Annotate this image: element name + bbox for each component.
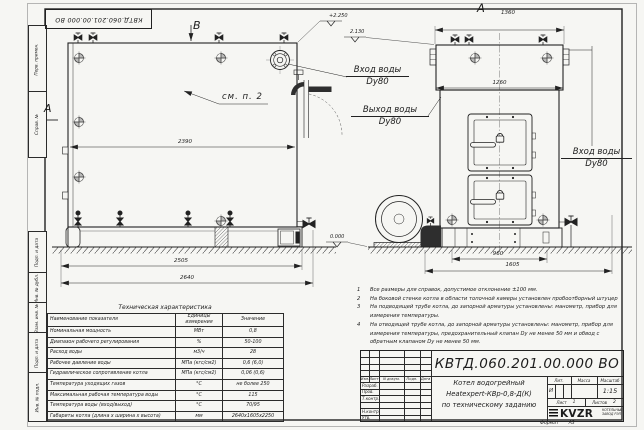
scale-value: 1:15 [597, 384, 623, 398]
sign-row-utv: Утв. [362, 415, 379, 422]
spec-row: Расход водым3/ч28 [48, 348, 284, 359]
water-outlet-dy: Dy80 [351, 117, 429, 128]
spec-name: Максимальная рабочая температура воды [48, 390, 176, 401]
spec-unit: МПа (кгс/см2) [176, 358, 223, 369]
spec-name: Расход воды [48, 348, 176, 359]
kvzr-logo-icon [549, 409, 558, 418]
spec-unit: °С [176, 401, 223, 412]
spec-value: 0,06 (0,6) [223, 369, 284, 380]
margin-label: Инв. № подл. [35, 382, 40, 412]
drawing-notes: 1Все размеры для справок, допустимое отк… [357, 286, 621, 347]
spec-name: Температура воды (вход/выход) [48, 401, 176, 412]
margin-stamp-podp-data-2: Подп. и дата [28, 332, 47, 374]
water-inlet-text: Вход воды [346, 65, 409, 77]
spec-name: Рабочее давление воды [48, 358, 176, 369]
spec-value: 70/95 [223, 401, 284, 412]
spec-row: Номинальная мощностьМВт0,8 [48, 327, 284, 338]
company-name: КОТЕЛЬНЫЙ ЗАВОД РЭП [602, 408, 622, 416]
margin-label: Перв. примен. [35, 43, 40, 75]
water-outlet-text: Выход воды [351, 105, 429, 117]
dim-1605: 1605 [490, 262, 535, 268]
title-block-description: Котел водогрейный Heatexpert-КВр-0,8-Д(К… [433, 378, 545, 420]
margin-stamp-podp-data-1: Подп. и дата [28, 231, 47, 274]
elevation-zero: 0.000 [330, 234, 344, 240]
spec-table-title: Техническая характеристика [47, 304, 283, 311]
spec-value: 28 [223, 348, 284, 359]
kvzr-logo-text: KVZR [560, 408, 593, 420]
spec-unit: м3/ч [176, 348, 223, 359]
spec-header-unit: Единицы измерения [176, 314, 223, 327]
spec-value: 2640х1605х2250 [223, 411, 284, 422]
description-line: Heatexpert-КВр-0,8-Д(К) [433, 389, 545, 400]
sheets-label: Листов [592, 400, 607, 405]
dim-960: 960 [478, 251, 518, 257]
company-name-line: ЗАВОД РЭП [602, 412, 622, 416]
water-inlet-label-front: Вход воды Dy80 [561, 147, 632, 170]
note-number: 4 [357, 321, 370, 347]
lit-label: Лит. [547, 376, 571, 384]
spec-value: 50-100 [223, 337, 284, 348]
note-number: 2 [357, 295, 370, 304]
margin-stamp-vzam-inv: Взам. инв. № [28, 302, 47, 334]
company-logo: KVZR [549, 407, 601, 420]
margin-stamp-perv-primen: Перв. примен. [28, 25, 47, 93]
spec-name: Габариты котла (длина х ширина х высота) [48, 411, 176, 422]
spec-name: Гидравлическое сопротивление котла [48, 369, 176, 380]
dim-2505: 2505 [156, 258, 206, 264]
water-inlet-text: Вход воды [561, 147, 632, 159]
format-label: Формат [540, 421, 559, 426]
note-number: 1 [357, 286, 370, 295]
water-outlet-label: Выход воды Dy80 [351, 105, 429, 128]
spec-unit: мм [176, 411, 223, 422]
water-inlet-dy: Dy80 [346, 77, 409, 88]
margin-label: Подп. и дата [35, 338, 40, 367]
dim-2640: 2640 [162, 275, 212, 281]
sheets-value: 2 [613, 400, 616, 405]
sheet-value: 1 [573, 400, 576, 405]
spec-row: Рабочее давление водыМПа (кгс/см2)0,6 (6… [48, 358, 284, 369]
spec-unit: % [176, 337, 223, 348]
rotated-docnumber-text: КВТД.060.201.00.000 ВО [55, 16, 143, 23]
spec-row: Гидравлическое сопротивление котлаМПа (к… [48, 369, 284, 380]
note-text: На отводящей трубе котла, до запорной ар… [370, 321, 621, 347]
margin-label: Справ. № [35, 114, 40, 135]
margin-label: Инв. № дубл. [35, 273, 40, 302]
spec-name: Номинальная мощность [48, 327, 176, 338]
format-note: Формат А3 [540, 421, 575, 426]
view-a-label: А [477, 1, 485, 15]
margin-stamp-inv-dubl: Инв. № дубл. [28, 272, 47, 304]
note-text: На боковой стенке котла в области топочн… [370, 295, 621, 304]
title-block-docnumber: КВТД.060.201.00.000 ВО [431, 351, 623, 376]
spec-value: 0,6 (6,0) [223, 358, 284, 369]
note-item: 2На боковой стенке котла в области топоч… [357, 295, 621, 304]
spec-value: не более 250 [223, 379, 284, 390]
note-number: 3 [357, 303, 370, 320]
note-item: 4На отводящей трубе котла, до запорной а… [357, 321, 621, 347]
margin-label: Взам. инв. № [35, 303, 40, 332]
spec-unit: °С [176, 390, 223, 401]
section-a-label: А [44, 102, 52, 115]
margin-label: Подп. и дата [35, 238, 40, 267]
elevation-mid: 2.130 [350, 29, 364, 35]
spec-header-value: Значение [223, 314, 284, 327]
lit-value: И [547, 384, 555, 398]
spec-name: Диапазон рабочего регулирования [48, 337, 176, 348]
spec-table: Наименование показателя Единицы измерени… [47, 313, 284, 422]
dim-1360: 1360 [498, 10, 518, 16]
spec-row: Диапазон рабочего регулирования%50-100 [48, 337, 284, 348]
spec-unit: МВт [176, 327, 223, 338]
note-item: 1Все размеры для справок, допустимое отк… [357, 286, 621, 295]
spec-row: Температура воды (вход/выход)°С70/95 [48, 401, 284, 412]
dim-1260: 1260 [471, 80, 528, 86]
margin-stamp-inv-podl: Инв. № подл. [28, 372, 47, 422]
spec-unit: МПа (кгс/см2) [176, 369, 223, 380]
col-data: Дата [420, 376, 431, 382]
view-b-label: В [193, 19, 201, 32]
water-inlet-dy: Dy80 [561, 159, 632, 170]
note-item: 3На подводящей трубе котла, до запорной … [357, 303, 621, 320]
spec-row: Максимальная рабочая температура воды°С1… [48, 390, 284, 401]
mass-label: Масса [571, 376, 597, 384]
drawing-sheet: Перв. примен. Справ. № Подп. и дата Инв.… [0, 0, 644, 430]
col-podp: Подп. [404, 376, 420, 382]
water-inlet-label-side: Вход воды Dy80 [346, 65, 409, 88]
spec-name: Температура уходящих газов [48, 379, 176, 390]
format-value: А3 [569, 421, 575, 426]
spec-row: Габариты котла (длина х ширина х высота)… [48, 411, 284, 422]
note-text: Все размеры для справок, допустимое откл… [370, 286, 621, 295]
spec-header-row: Наименование показателя Единицы измерени… [48, 314, 284, 327]
note-text: На подводящей трубе котла, до запорной а… [370, 303, 621, 320]
description-line: по техническому заданию [433, 400, 545, 411]
spec-unit: °С [176, 379, 223, 390]
elevation-top: +2.250 [329, 13, 348, 19]
scale-label: Масштаб [597, 376, 623, 384]
spec-value: 0,8 [223, 327, 284, 338]
spec-row: Температура уходящих газов°Сне более 250 [48, 379, 284, 390]
see-note-annotation: см. п. 2 [222, 92, 263, 102]
spec-header-name: Наименование показателя [48, 314, 176, 327]
title-block: КВТД.060.201.00.000 ВО Изм. Лист N докум… [360, 350, 624, 422]
description-line: Котел водогрейный [433, 378, 545, 389]
rotated-docnumber-stamp: КВТД.060.201.00.000 ВО [45, 9, 152, 29]
col-ndocum: N докум. [379, 376, 404, 382]
dim-2390: 2390 [158, 139, 212, 145]
boiler-side-view [45, 25, 347, 287]
sheet-label: Лист [556, 400, 566, 405]
spec-value: 115 [223, 390, 284, 401]
